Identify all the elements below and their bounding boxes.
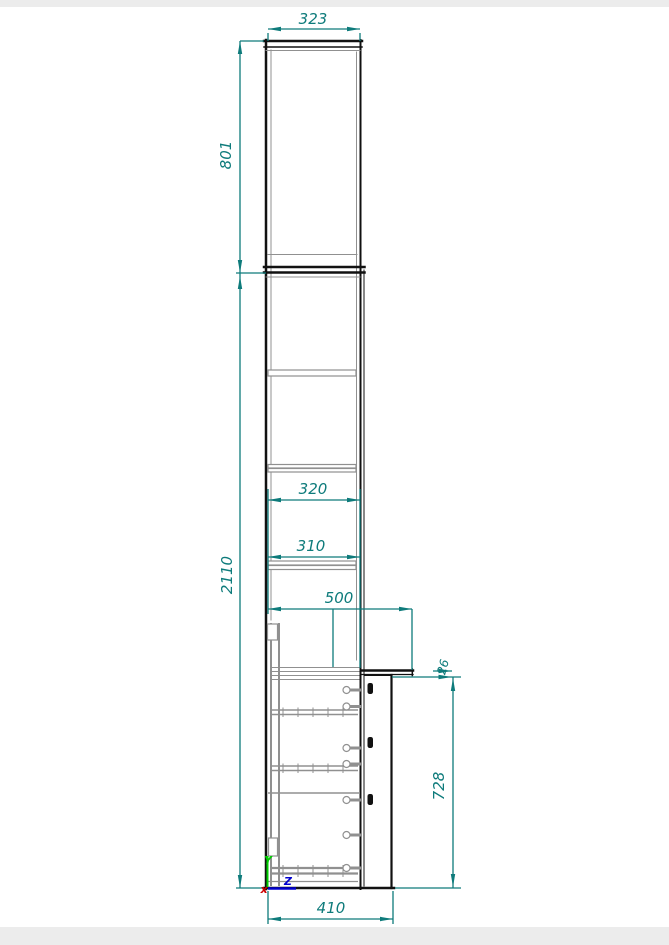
screw-icon: [343, 687, 362, 694]
dim-shelf-depth-310: 310: [268, 537, 360, 559]
screw-icon: [343, 703, 362, 710]
ucs-z-label: Z: [283, 875, 293, 888]
dim-label-26: 26: [434, 657, 452, 676]
screw-icon: [343, 797, 362, 804]
dim-top-width: 323: [268, 10, 360, 41]
bottom-margin-band: [0, 927, 669, 945]
shelf-1: [268, 370, 356, 376]
door-hinges: [368, 683, 374, 805]
base-unit: [272, 668, 413, 889]
screw-icon: [343, 832, 362, 839]
pullout-basket-mechanism: [268, 623, 361, 886]
dim-total-height: 801 2110: [217, 41, 266, 888]
top-margin-band: [0, 0, 669, 7]
cad-drawing-canvas: 323 801 2110 320: [0, 0, 669, 945]
dim-label-410: 410: [317, 899, 346, 917]
shelf-2b: [268, 469, 356, 473]
dim-base-depth-410: 410: [268, 891, 393, 924]
hinge-icon: [368, 683, 374, 694]
ucs-x-label: x: [259, 883, 268, 896]
dim-label-728: 728: [430, 772, 448, 801]
screw-icon: [343, 745, 362, 752]
shelf-3a: [268, 561, 356, 565]
hinge-icon: [368, 794, 374, 805]
dim-label-320: 320: [299, 480, 328, 498]
dim-counter-thickness-26: 26: [392, 657, 461, 679]
hinge-icon: [368, 737, 374, 748]
shelf-3b: [268, 566, 356, 570]
screw-icon: [343, 865, 362, 872]
dim-shelf-depth-320: 320: [268, 480, 360, 668]
dim-base-open-depth-500: 500: [268, 589, 412, 670]
dim-label-2110: 2110: [218, 556, 236, 594]
shelf-2a: [268, 465, 356, 469]
dim-label-310: 310: [297, 537, 326, 555]
dim-label-323: 323: [299, 10, 328, 28]
dim-label-801: 801: [217, 141, 235, 170]
ucs-y-label: Y: [264, 854, 273, 867]
dim-base-height-728: 728: [395, 677, 461, 888]
dim-label-500: 500: [325, 589, 354, 607]
